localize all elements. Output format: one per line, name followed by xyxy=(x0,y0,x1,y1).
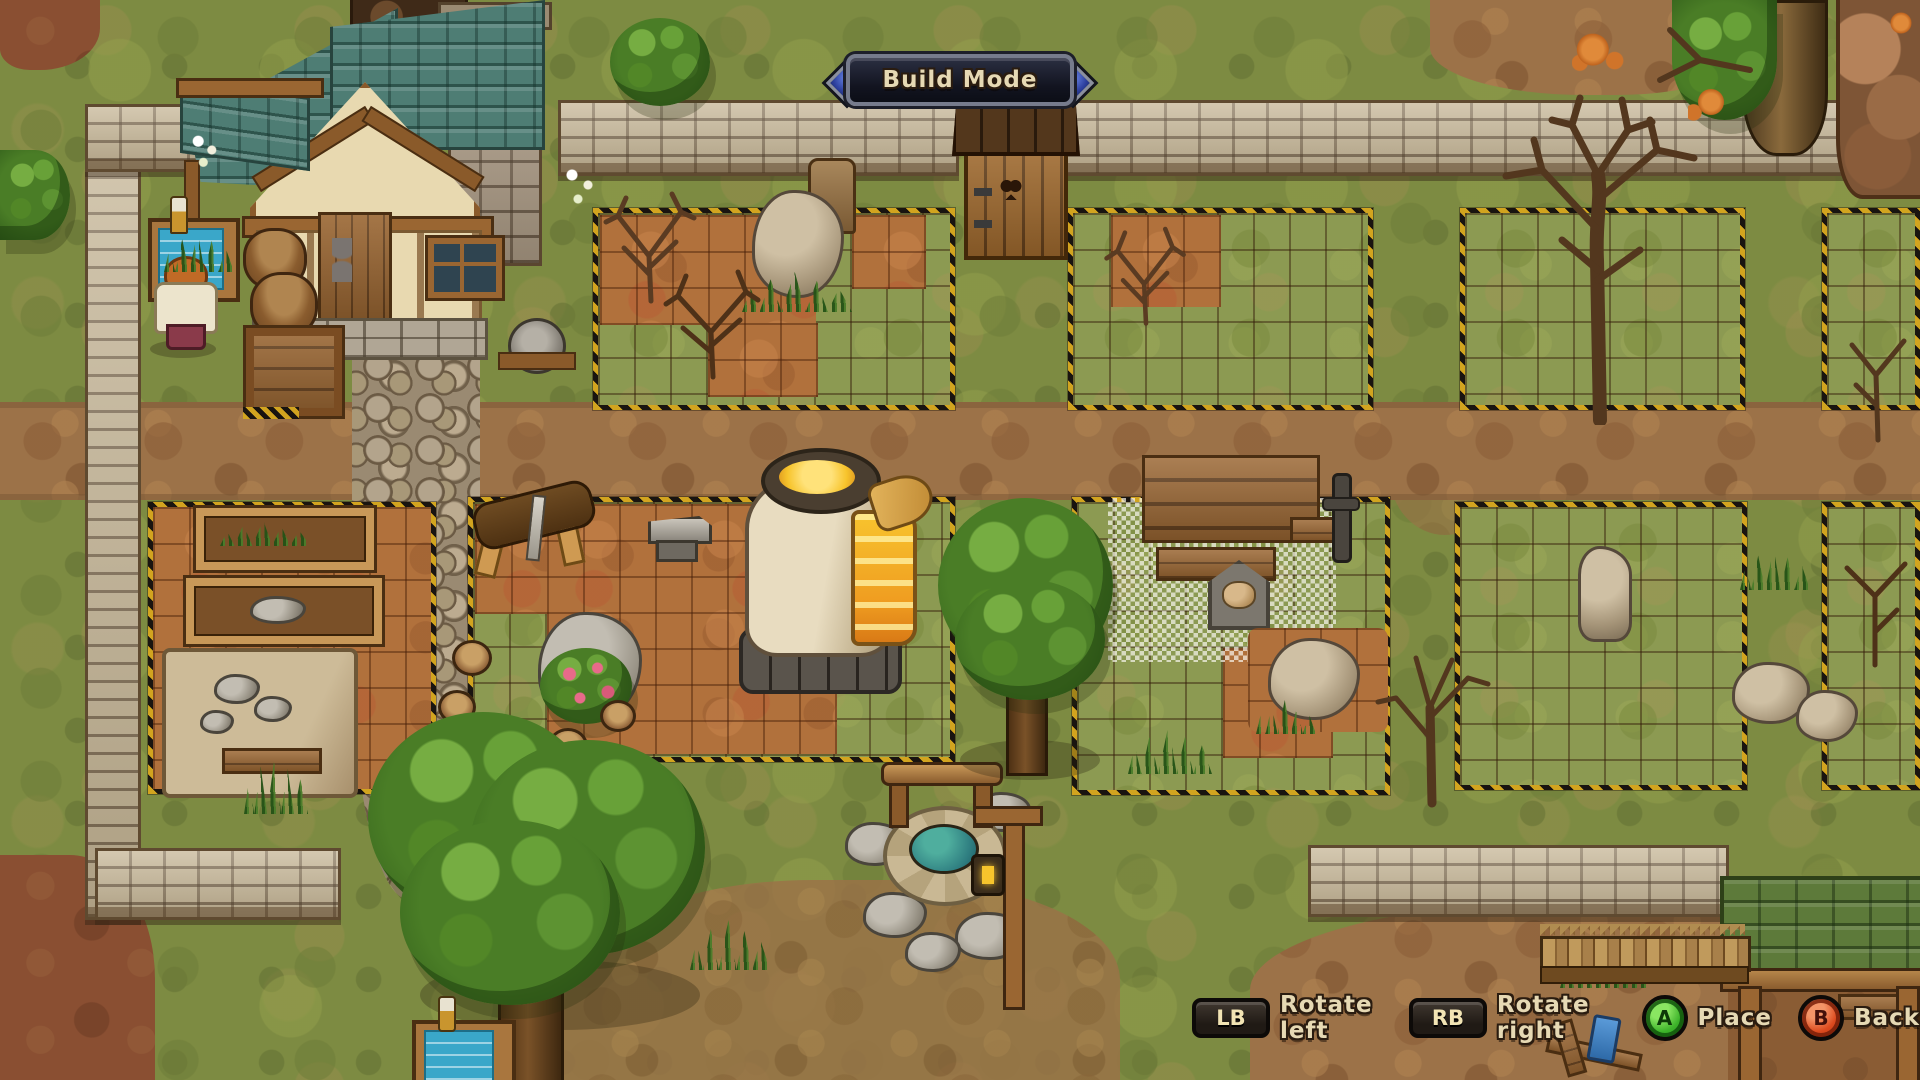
hint-label: Place xyxy=(1698,1005,1773,1031)
tree-stump xyxy=(600,700,636,732)
white-flower xyxy=(560,160,600,210)
outhouse xyxy=(952,92,1072,260)
anvil xyxy=(648,512,710,560)
stones xyxy=(214,674,260,704)
storage-crate xyxy=(243,325,345,419)
mushroom-cluster xyxy=(1884,6,1918,40)
controller-hints: LB Rotate left RB Rotate right A Place B… xyxy=(1192,996,1920,1040)
mid-tree-canopy xyxy=(955,580,1105,700)
lantern-glow xyxy=(982,866,994,884)
bottle-2 xyxy=(438,996,456,1032)
outhouse-hinge xyxy=(974,220,992,228)
rb-button[interactable]: RB xyxy=(1409,998,1487,1038)
tilled-soil-patch xyxy=(852,215,926,289)
bottle xyxy=(170,196,188,234)
furnace-fire-top xyxy=(779,460,855,494)
stone-wall-bottom-right xyxy=(1308,845,1729,917)
well xyxy=(845,762,1045,972)
stone-wall-bottom-left xyxy=(95,848,341,920)
player-pants xyxy=(166,324,206,350)
build-mode-banner: Build Mode xyxy=(840,55,1080,105)
hint-label: Rotate right xyxy=(1497,992,1616,1044)
pile-planks xyxy=(222,748,322,774)
lb-button[interactable]: LB xyxy=(1192,998,1270,1038)
blueprint-paper-2 xyxy=(424,1030,494,1080)
furnace xyxy=(733,448,923,703)
hint-rotate-left[interactable]: LB Rotate left xyxy=(1192,992,1383,1044)
mushroom-cluster xyxy=(1572,32,1624,76)
mushroom-cluster xyxy=(1688,86,1734,126)
b-button[interactable]: B xyxy=(1798,995,1844,1041)
clay-lump-icon xyxy=(1222,581,1256,609)
dead-bush xyxy=(648,262,778,382)
banner-title: Build Mode xyxy=(883,67,1038,93)
well-arm-post xyxy=(1003,814,1025,1010)
tree-stump xyxy=(452,640,492,676)
house-door-bone-decor xyxy=(332,238,352,282)
stones xyxy=(200,710,234,734)
grass-tuft xyxy=(1740,548,1810,590)
picket-fence xyxy=(1540,924,1745,982)
game-viewport: Build Mode LB Rotate left RB Rotate righ… xyxy=(0,0,1920,1080)
outhouse-hinge xyxy=(974,188,992,196)
well-stones xyxy=(905,932,961,972)
dead-branches xyxy=(1832,540,1920,670)
picket-rail xyxy=(1540,966,1749,984)
grindstone-stand xyxy=(498,352,576,370)
house xyxy=(180,0,580,360)
hint-label: Rotate left xyxy=(1280,992,1383,1044)
big-tree-canopy xyxy=(400,820,620,1005)
lantern xyxy=(971,854,1005,896)
house-door xyxy=(318,212,392,324)
vise-handle xyxy=(1322,497,1360,511)
dead-branches xyxy=(1838,315,1920,445)
dirt-patch-top-left xyxy=(0,0,100,70)
dead-bush xyxy=(1086,218,1206,328)
hint-rotate-right[interactable]: RB Rotate right xyxy=(1409,992,1616,1044)
anvil-base xyxy=(656,540,698,562)
sawing-horse xyxy=(473,485,593,577)
standing-stone xyxy=(1578,546,1632,642)
stones xyxy=(254,696,292,722)
banner-plate: Build Mode xyxy=(846,54,1074,106)
crate-hazard-stripe xyxy=(243,407,299,419)
stone-wall-left-vertical xyxy=(85,104,141,920)
house-leanto-beam xyxy=(176,78,324,98)
house-window xyxy=(428,238,502,298)
outhouse-body xyxy=(964,140,1068,260)
white-flower xyxy=(188,128,222,172)
stone-wall-top-left-segment xyxy=(558,100,959,176)
outhouse-heart-cutout xyxy=(1000,180,1022,200)
shed xyxy=(1720,876,1920,1080)
dead-tree-small xyxy=(1368,598,1498,808)
a-button[interactable]: A xyxy=(1642,995,1688,1041)
hint-label: Back xyxy=(1854,1005,1920,1031)
vise xyxy=(1332,473,1352,563)
well-arm-beam xyxy=(973,806,1043,826)
bush xyxy=(610,18,710,106)
well-water xyxy=(909,824,979,874)
bush xyxy=(0,150,70,240)
dead-tree-large xyxy=(1482,80,1722,425)
hint-place[interactable]: A Place xyxy=(1642,995,1773,1041)
hint-back[interactable]: B Back xyxy=(1798,995,1920,1041)
